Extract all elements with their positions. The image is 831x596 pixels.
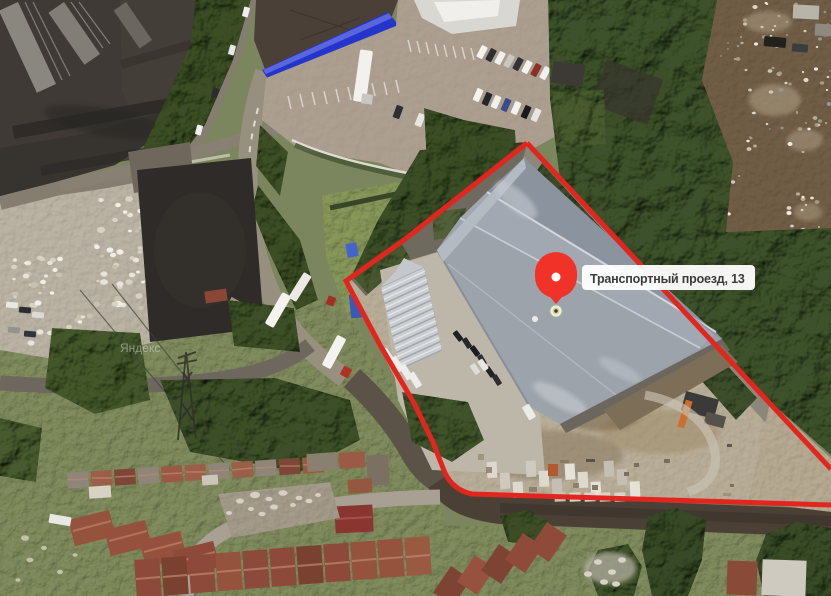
svg-text:Транспортный проезд, 13: Транспортный проезд, 13 bbox=[590, 272, 745, 286]
svg-text:Яндекс: Яндекс bbox=[120, 341, 160, 355]
